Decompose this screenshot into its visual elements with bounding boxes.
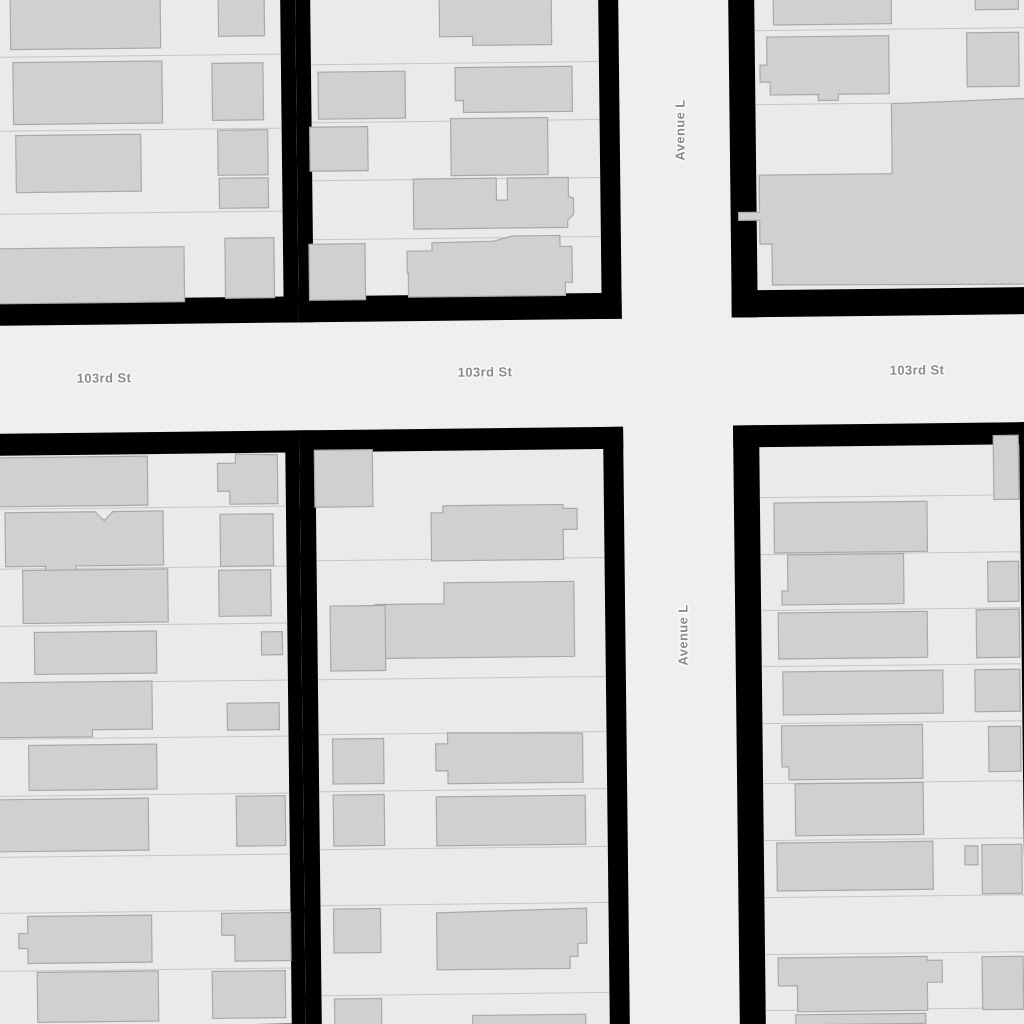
building-footprint xyxy=(965,846,978,865)
building-footprint xyxy=(236,796,286,847)
building-footprint xyxy=(16,134,142,192)
building-footprint xyxy=(982,844,1023,893)
building-footprint xyxy=(333,738,385,784)
building-footprint xyxy=(436,795,586,846)
building-footprint xyxy=(778,956,943,1012)
building-footprint xyxy=(976,609,1020,657)
building-footprint xyxy=(219,178,268,209)
building-footprint xyxy=(439,0,552,46)
building-footprint xyxy=(218,0,265,36)
building-footprint xyxy=(993,435,1019,499)
building-footprint xyxy=(975,669,1020,712)
building-footprint xyxy=(333,794,385,846)
building-footprint xyxy=(13,61,163,125)
building-footprint xyxy=(212,63,264,121)
building-footprint xyxy=(773,0,892,25)
building-footprint xyxy=(19,915,153,964)
building-footprint xyxy=(220,514,274,567)
building-footprint xyxy=(318,71,406,119)
building-footprint xyxy=(0,247,185,304)
building-footprint xyxy=(333,909,380,954)
building-footprint xyxy=(782,554,905,605)
building-footprint xyxy=(218,130,269,176)
building-footprint xyxy=(222,913,292,962)
building-footprint xyxy=(451,118,549,176)
building-footprint xyxy=(982,956,1024,1009)
building-footprint xyxy=(34,631,156,674)
building-footprint xyxy=(23,569,169,624)
building-footprint xyxy=(774,501,928,553)
building-footprint xyxy=(975,0,1018,10)
building-footprint xyxy=(0,456,148,507)
building-footprint xyxy=(781,724,923,780)
building-footprint xyxy=(778,611,928,659)
building-footprint xyxy=(988,726,1021,771)
building-footprint xyxy=(217,454,278,505)
building-footprint xyxy=(407,235,573,297)
building-footprint xyxy=(219,570,272,617)
building-footprint xyxy=(335,999,382,1024)
building-footprint xyxy=(310,127,368,172)
building-footprint xyxy=(37,971,159,1022)
building-footprint xyxy=(777,841,934,891)
building-footprint xyxy=(314,450,373,508)
building-footprint xyxy=(309,244,366,301)
building-footprint xyxy=(225,238,275,299)
building-footprint xyxy=(0,681,153,738)
building-footprint xyxy=(29,744,158,790)
building-footprint xyxy=(375,581,575,658)
building-footprint xyxy=(455,66,573,112)
building-footprint xyxy=(967,32,1020,87)
building-footprint xyxy=(227,703,279,731)
building-footprint xyxy=(0,798,149,852)
building-footprint xyxy=(436,731,584,784)
building-footprint xyxy=(330,605,386,671)
building-footprint xyxy=(760,36,890,101)
building-footprint xyxy=(431,504,578,561)
map-canvas[interactable]: 103rd St103rd St103rd StAvenue LAvenue L xyxy=(0,0,1024,1024)
building-footprint xyxy=(212,971,286,1019)
building-footprint xyxy=(988,561,1019,601)
building-footprint xyxy=(795,782,924,835)
building-footprint xyxy=(473,1014,586,1024)
building-footprint xyxy=(10,0,161,50)
building-footprint xyxy=(437,908,588,970)
building-footprint xyxy=(783,670,943,715)
building-footprint xyxy=(5,511,164,578)
building-footprint-layer xyxy=(0,0,1024,1024)
building-footprint xyxy=(261,632,282,655)
building-footprint xyxy=(737,98,1024,287)
map-tile-layer xyxy=(0,0,1024,1024)
building-footprint xyxy=(796,1013,926,1024)
building-footprint xyxy=(413,177,574,229)
